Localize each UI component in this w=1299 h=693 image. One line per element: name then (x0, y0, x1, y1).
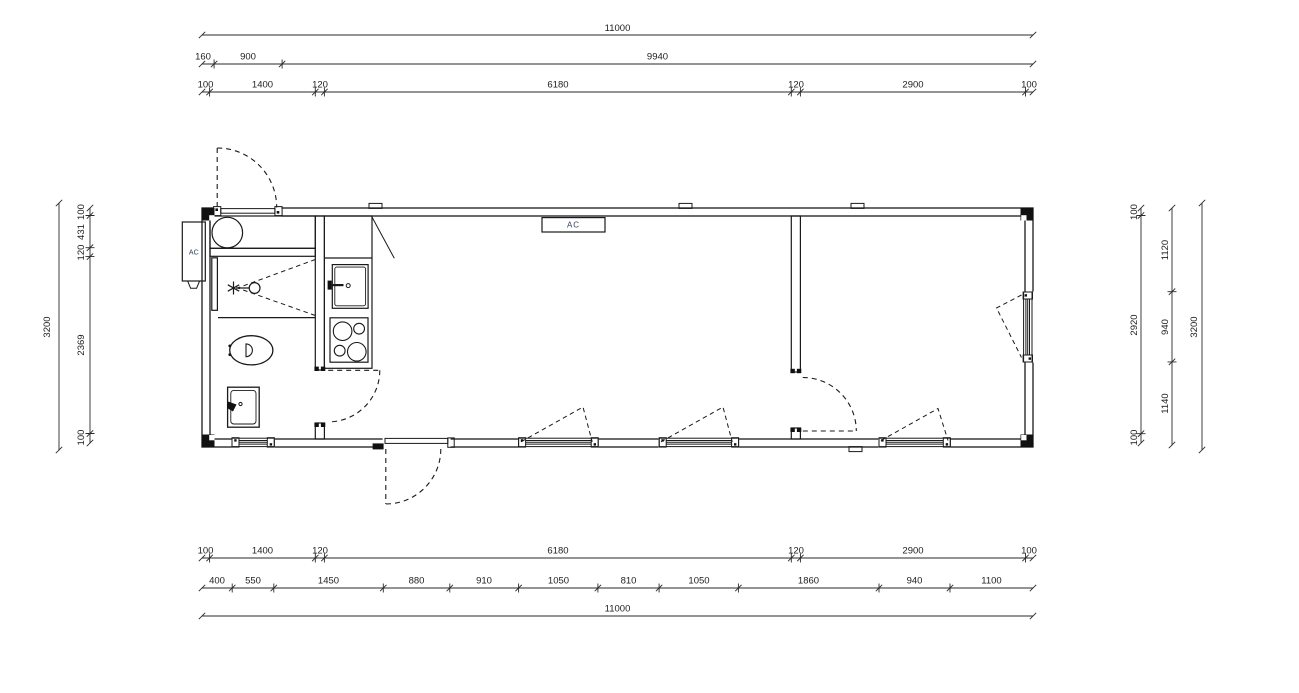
dim-label: 120 (788, 546, 804, 557)
sink-faucet-icon (328, 281, 332, 290)
dim-label: 100 (1021, 80, 1037, 91)
door-jamb-blocks (314, 367, 801, 432)
bedroom-door-swing (803, 378, 857, 432)
exterior-walls (202, 208, 1033, 447)
door-swing-arc (386, 449, 441, 504)
dim-label: 1100 (981, 576, 1001, 587)
dim-label: 100 (1021, 546, 1037, 557)
dim-label-bottom-overall: 11000 (605, 604, 631, 615)
dim-label: 100 (198, 546, 214, 557)
counter-corner-line (372, 217, 394, 258)
cooktop-icon (330, 318, 368, 362)
dim-label-right-overall: 3200 (1189, 316, 1200, 337)
ac-wall-unit-label: AC (189, 250, 199, 257)
basin-faucet-icon (227, 402, 237, 412)
dim-label: 550 (245, 576, 261, 587)
dimension-labels-bottom: 100 1400 120 6180 120 2900 100 400 550 1… (198, 546, 1037, 615)
right-window-indicator (997, 295, 1022, 358)
dim-label: 2920 (1129, 314, 1140, 335)
dim-label: 1400 (252, 80, 273, 91)
door-swings (217, 148, 856, 504)
entry-door-top-swing (217, 148, 277, 208)
window-opening-indicators (521, 295, 1022, 442)
dim-label: 2900 (902, 546, 923, 557)
dim-label: 1050 (688, 576, 709, 587)
bedroom-partition-wall (791, 216, 800, 372)
dim-label: 120 (312, 80, 328, 91)
dim-label: 880 (409, 576, 425, 587)
dim-label: 9940 (647, 52, 668, 63)
door-swing-arc (217, 148, 277, 208)
washbasin-icon (227, 387, 259, 427)
dim-label-left-overall: 3200 (42, 316, 53, 337)
dim-label: 940 (907, 576, 923, 587)
inner-wall-line (210, 216, 1025, 439)
dim-label: 1860 (798, 576, 819, 587)
door-swing-arc (803, 378, 857, 432)
window2-indicator (661, 407, 732, 442)
dim-label: 120 (312, 546, 328, 557)
dimension-labels-right: 100 2920 100 1120 940 1140 3200 (1129, 204, 1200, 445)
dim-label: 900 (240, 52, 256, 63)
interior-partitions (210, 216, 800, 439)
toilet-drain (246, 344, 252, 357)
dim-label: 1050 (548, 576, 569, 587)
outer-wall-line (202, 208, 1033, 447)
dim-label: 120 (788, 80, 804, 91)
wall-openings (214, 207, 1035, 448)
dim-label: 2900 (902, 80, 923, 91)
kitchen-counter (324, 216, 372, 368)
kitchen (324, 216, 394, 368)
floor-plan-canvas: AC AC (0, 0, 1299, 693)
dim-label: 120 (76, 245, 87, 261)
floor-plan-page: AC AC (0, 0, 1299, 693)
water-heater-shelf (210, 216, 315, 248)
dim-label: 100 (76, 430, 87, 446)
windows (232, 292, 1033, 447)
dim-label: 1140 (1160, 393, 1171, 413)
dim-label: 2369 (76, 334, 87, 355)
dim-label: 160 (195, 52, 211, 63)
ac-wall-unit-foot (188, 281, 200, 288)
dim-label: 1120 (1160, 240, 1171, 260)
kitchen-sink-icon (328, 265, 368, 309)
dim-label-top-overall: 11000 (605, 23, 631, 34)
toilet-icon (228, 336, 272, 365)
door-swing-arc (328, 370, 380, 422)
window3-indicator (881, 409, 948, 441)
dim-label: 431 (76, 224, 87, 240)
dim-label: 6180 (547, 546, 568, 557)
dim-label: 910 (476, 576, 492, 587)
bathroom-divider-wall (210, 248, 315, 256)
dim-label: 100 (1129, 430, 1140, 446)
window1-indicator (521, 407, 592, 442)
dim-label: 100 (1129, 204, 1140, 220)
dim-label: 100 (76, 204, 87, 220)
bathroom-door-swing (328, 370, 380, 422)
water-heater (212, 217, 243, 248)
bathroom-partition-wall (315, 216, 324, 370)
ac-ceiling-unit-label: AC (567, 221, 580, 230)
dim-label: 100 (198, 80, 214, 91)
shower-head-icon (228, 282, 260, 295)
dim-label: 400 (209, 576, 225, 587)
dim-label: 940 (1160, 319, 1171, 335)
panel-joint-ticks (369, 203, 864, 451)
dimension-labels-top: 11000 160 900 9940 100 1400 120 6180 120… (195, 23, 1037, 91)
shower-ledge (212, 258, 218, 311)
bathroom (210, 216, 315, 427)
corner-posts (202, 208, 1033, 447)
dim-label: 810 (621, 576, 637, 587)
dim-label: 1450 (318, 576, 339, 587)
entry-door-bottom-swing (386, 449, 441, 504)
dim-label: 1400 (252, 546, 273, 557)
dimension-labels-left: 3200 100 431 120 2369 100 (42, 204, 87, 445)
dim-label: 6180 (547, 80, 568, 91)
